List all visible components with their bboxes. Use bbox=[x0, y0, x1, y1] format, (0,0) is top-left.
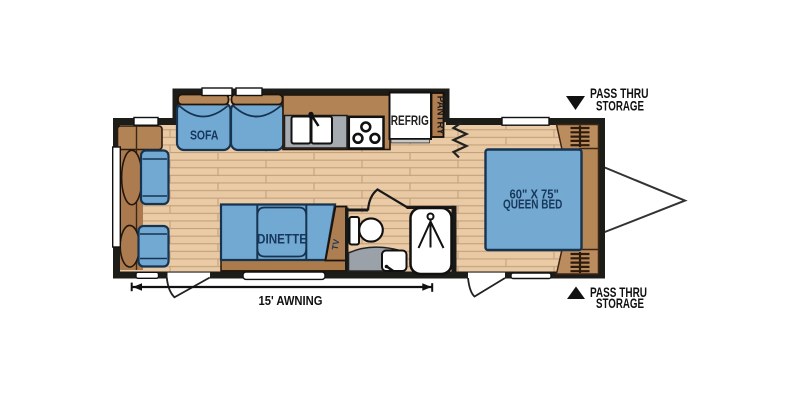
svg-text:DINETTE: DINETTE bbox=[257, 231, 307, 247]
svg-text:SOFA: SOFA bbox=[190, 127, 219, 142]
svg-text:STORAGE: STORAGE bbox=[596, 97, 644, 113]
svg-text:TV: TV bbox=[330, 238, 342, 251]
svg-text:15' AWNING: 15' AWNING bbox=[259, 293, 323, 308]
svg-text:PANTRY: PANTRY bbox=[434, 96, 445, 135]
svg-text:STORAGE: STORAGE bbox=[596, 295, 644, 311]
svg-text:QUEEN BED: QUEEN BED bbox=[503, 197, 562, 212]
svg-text:REFRIG: REFRIG bbox=[391, 113, 429, 128]
